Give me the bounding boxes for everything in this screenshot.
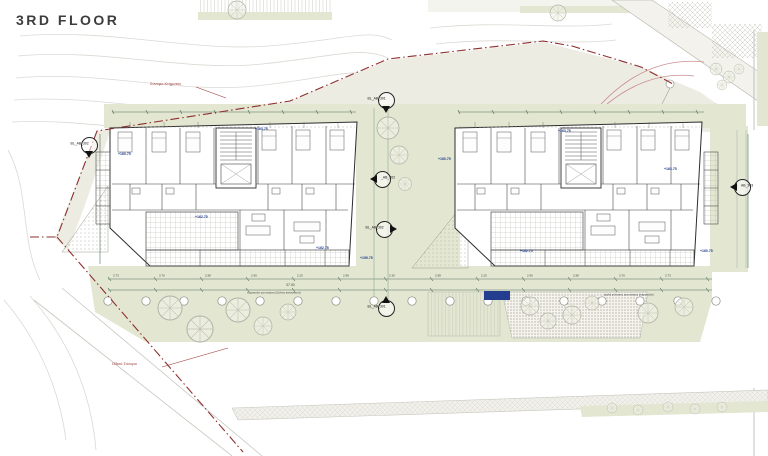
section-marker-label: BL_AB_302: [365, 226, 383, 230]
level-label: +160.75: [700, 249, 713, 253]
section-arrow-icon: [382, 296, 390, 303]
level-label: +163.75: [255, 127, 268, 131]
blue-feature-rect: [484, 291, 510, 300]
boundary-label-bottom: Οδικό Σύνορο: [112, 362, 137, 367]
level-label: +160.75: [438, 157, 451, 161]
level-label: +162.75: [520, 249, 533, 253]
section-marker: BL_AB_301: [378, 92, 395, 109]
site-annotation: ψηλή φύτευση για σκίαση (πέργκολα): [604, 293, 654, 297]
building-right: [455, 122, 702, 266]
section-marker: BL_AB_301: [378, 300, 395, 317]
dimension-value: 2.30: [389, 274, 395, 278]
section-marker: AB_303: [734, 179, 751, 196]
section-arrow-icon: [390, 225, 397, 233]
dimension-value: 2.20: [481, 274, 487, 278]
total-dimension: 37.00: [286, 283, 295, 287]
dimension-value: 2.98: [435, 274, 441, 278]
dimension-value: 2.98: [205, 274, 211, 278]
section-marker: _AB_302: [374, 171, 391, 188]
level-label: +160.75: [118, 152, 131, 156]
section-marker-label: BL_AB_301: [367, 97, 385, 101]
dimension-value: 3.73: [665, 274, 671, 278]
site-annotation: πέργκολα για σκίαση (ξύλινη κατασκευή): [247, 291, 301, 295]
dimension-value: 2.90: [251, 274, 257, 278]
dimension-value: 3.70: [619, 274, 625, 278]
dimension-value: 2.20: [297, 274, 303, 278]
section-marker: BL_AB_302: [81, 137, 98, 154]
section-marker-label: _AB_302: [381, 176, 395, 180]
section-arrow-icon: [370, 175, 377, 183]
section-marker-label: AB_303: [741, 184, 753, 188]
section-marker-label: BL_AB_301: [367, 305, 385, 309]
level-label: +163.75: [558, 129, 571, 133]
level-label: +162.75: [195, 215, 208, 219]
sidewalk-band: [232, 390, 768, 420]
section-marker: BL_AB_302: [376, 221, 393, 238]
section-arrow-icon: [382, 106, 390, 113]
page-title: 3RD FLOOR: [16, 12, 119, 28]
dimension-value: 3.70: [159, 274, 165, 278]
level-label: +163.75: [664, 167, 677, 171]
boundary-label-top: Σύνορο Κτήματος: [150, 82, 181, 87]
floor-plan-canvas: 3RD FLOOR Σύνορο Κτήματος Οδικό Σύνορο 3…: [0, 0, 768, 456]
section-arrow-icon: [85, 151, 93, 158]
dimension-value: 2.98: [573, 274, 579, 278]
building-left: [110, 122, 357, 266]
level-label: +162.75: [316, 246, 329, 250]
level-label: +159.75: [360, 256, 373, 260]
dimension-value: 2.90: [527, 274, 533, 278]
section-marker-label: BL_AB_302: [70, 142, 88, 146]
dimension-value: 2.98: [343, 274, 349, 278]
section-arrow-icon: [730, 183, 737, 191]
top-road-strip: [198, 0, 640, 20]
dimension-value: 3.73: [113, 274, 119, 278]
